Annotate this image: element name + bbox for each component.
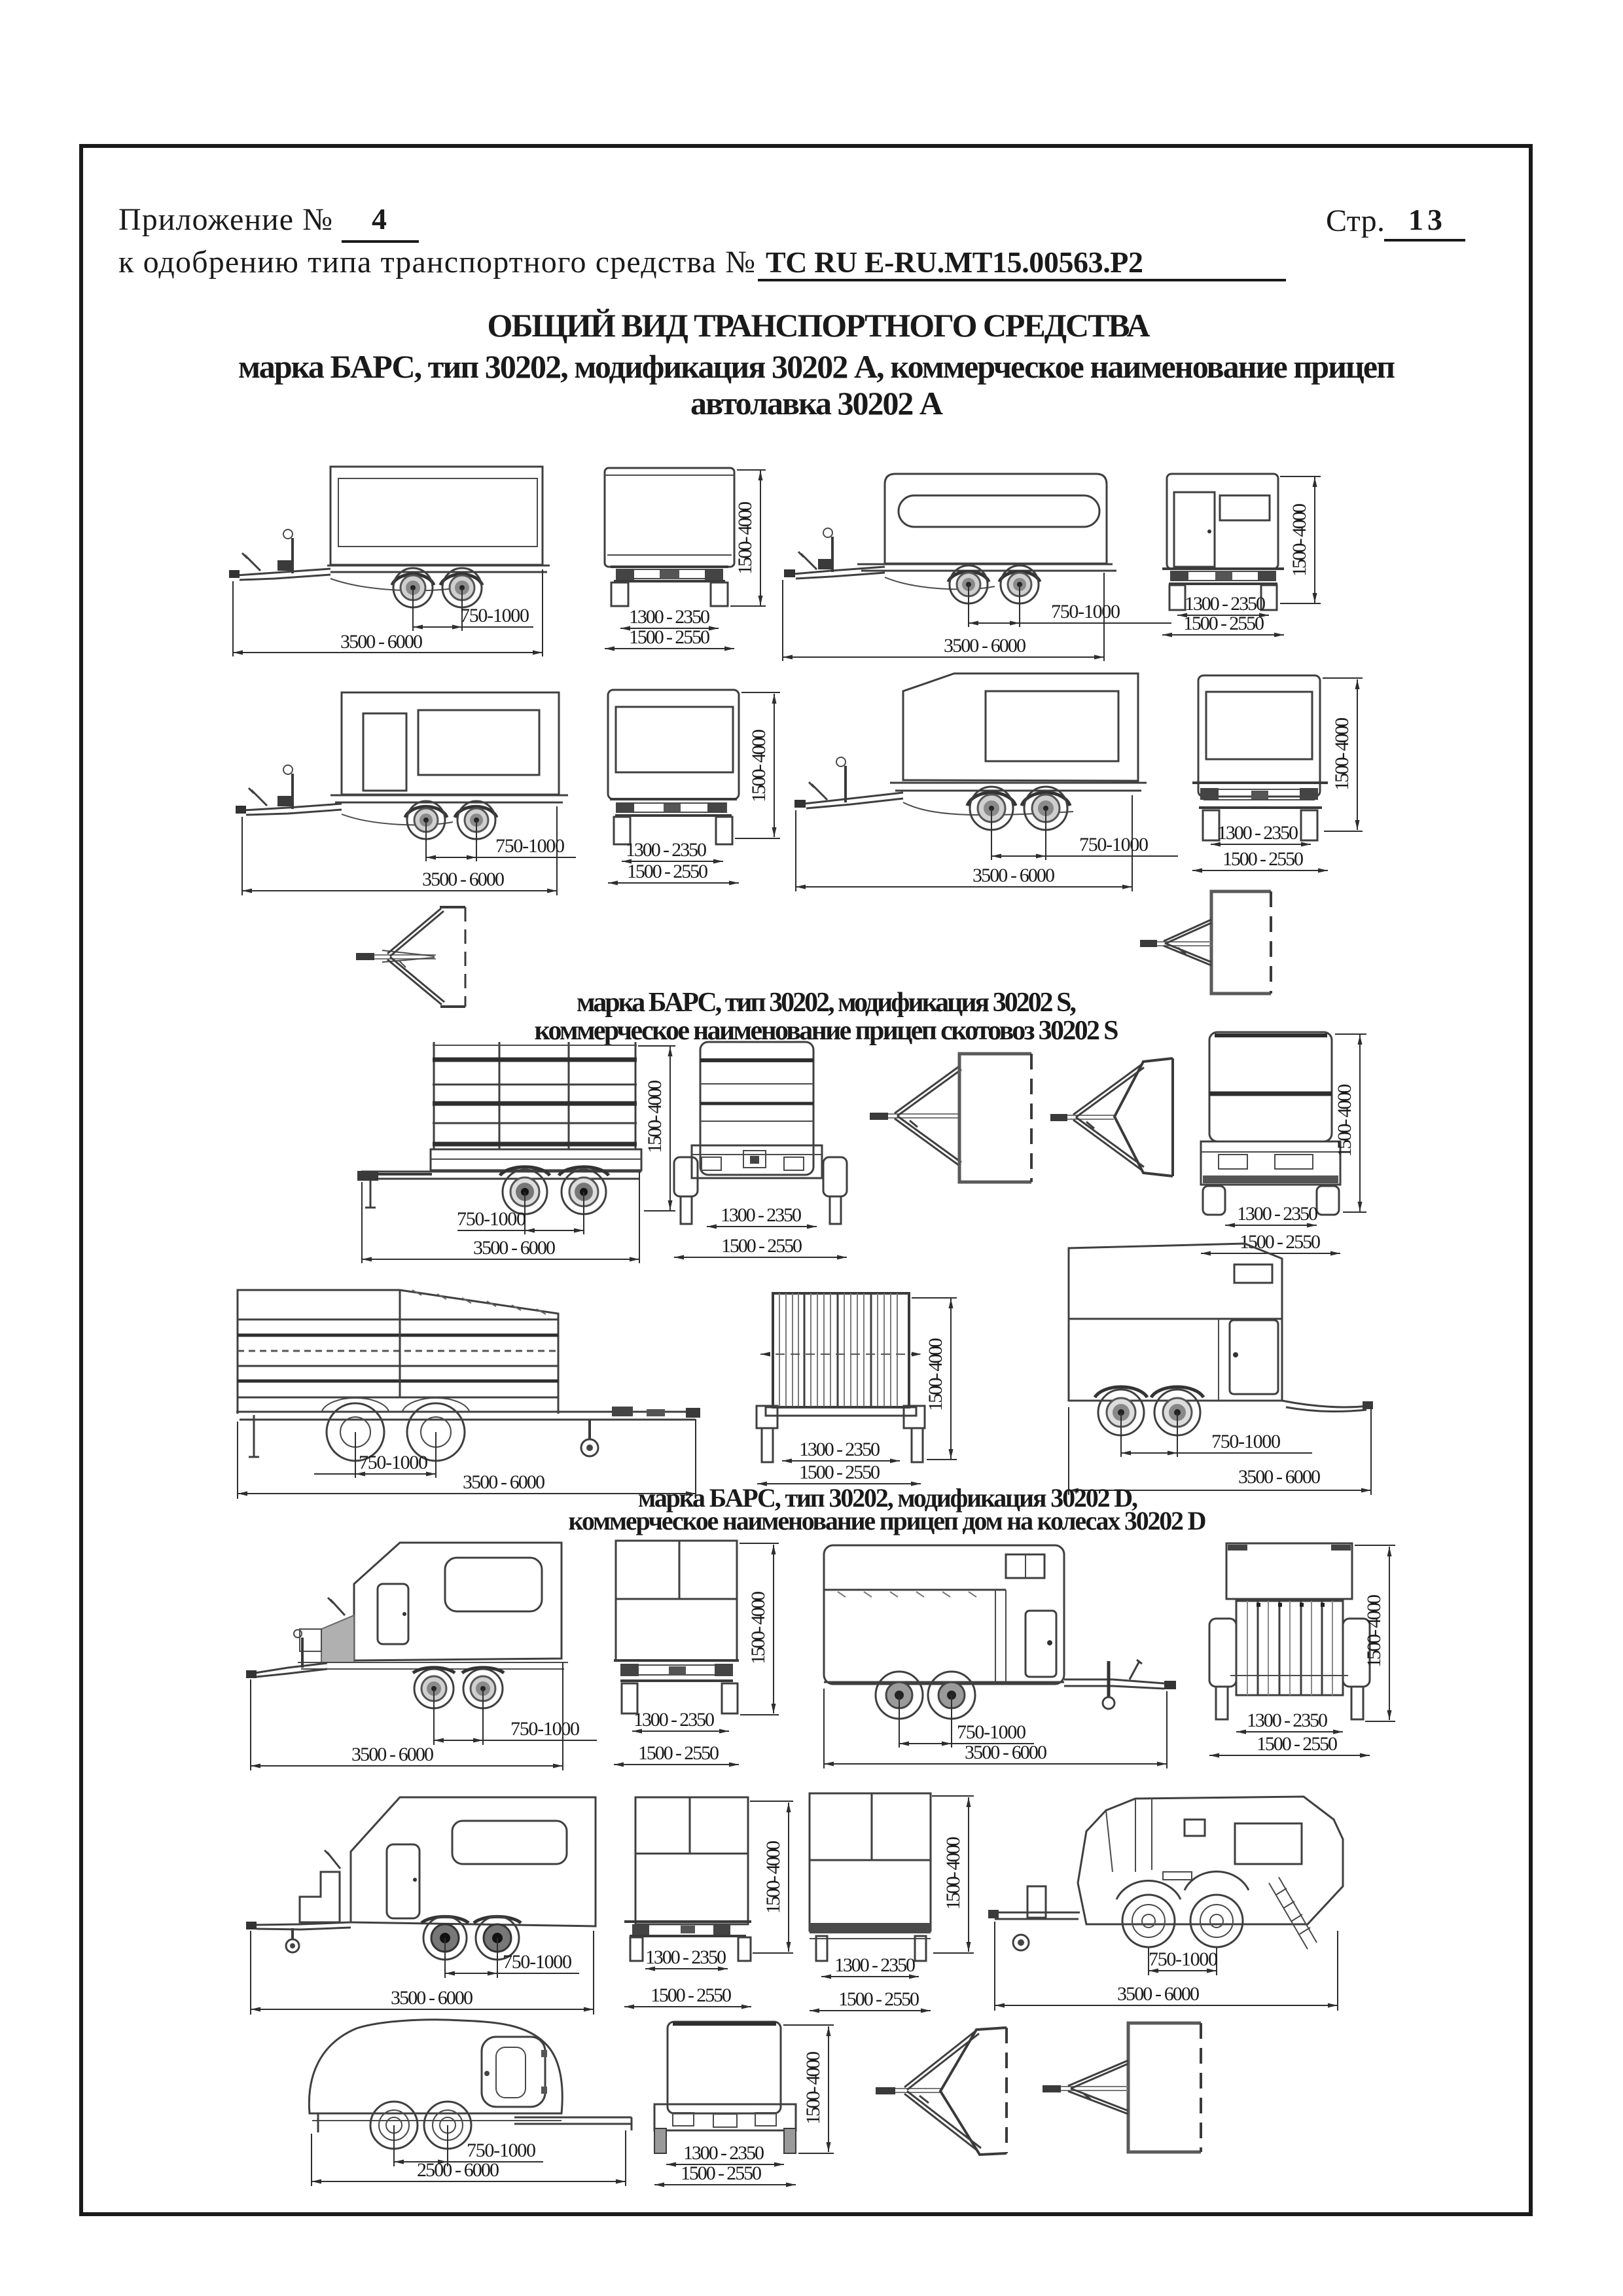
svg-text:750-1000: 750-1000 [1079,834,1149,855]
svg-text:1500 - 2550: 1500 - 2550 [721,1235,802,1257]
svg-text:1500 - 2550: 1500 - 2550 [627,861,708,882]
svg-text:1500 - 2550: 1500 - 2550 [1183,613,1264,634]
svg-text:1300 - 2350: 1300 - 2350 [633,1709,715,1731]
svg-text:3500 - 6000: 3500 - 6000 [351,1744,434,1765]
svg-text:3500 - 6000: 3500 - 6000 [1117,1983,1200,2005]
svg-text:1300 - 2350: 1300 - 2350 [1185,593,1266,615]
svg-text:750-1000: 750-1000 [1051,601,1120,622]
svg-text:1500 - 2550: 1500 - 2550 [1257,1733,1338,1755]
svg-text:3500 - 6000: 3500 - 6000 [944,635,1026,656]
svg-text:1500- 4000: 1500- 4000 [925,1338,946,1411]
svg-text:1300 - 2350: 1300 - 2350 [1237,1203,1318,1225]
svg-text:1500- 4000: 1500- 4000 [802,2051,824,2125]
svg-text:1500- 4000: 1500- 4000 [734,501,756,575]
svg-text:1500- 4000: 1500- 4000 [1289,503,1310,577]
svg-text:марка БАРС, тип 30202, модифик: марка БАРС, тип 30202, модификация 30202… [577,988,1077,1018]
svg-text:1300 - 2350: 1300 - 2350 [626,839,707,861]
svg-text:1500 - 2550: 1500 - 2550 [651,1984,732,2006]
svg-text:750-1000: 750-1000 [460,605,529,626]
svg-text:1500 - 2550: 1500 - 2550 [799,1462,880,1483]
svg-text:1500 - 2550: 1500 - 2550 [838,1988,919,2010]
svg-text:Приложение №: Приложение № [118,202,332,237]
svg-text:3500 - 6000: 3500 - 6000 [1238,1466,1321,1488]
svg-text:1500- 4000: 1500- 4000 [762,1840,784,1914]
svg-text:4: 4 [372,202,387,236]
svg-text:1300 - 2350: 1300 - 2350 [1247,1710,1328,1731]
svg-text:коммерческое наименование приц: коммерческое наименование прицеп дом на … [569,1506,1207,1535]
svg-text:3500 - 6000: 3500 - 6000 [473,1237,556,1259]
svg-text:1500- 4000: 1500- 4000 [1334,1084,1355,1157]
svg-text:750-1000: 750-1000 [467,2140,536,2161]
svg-text:1300 - 2350: 1300 - 2350 [1217,822,1298,844]
svg-text:1500- 4000: 1500- 4000 [1363,1594,1385,1668]
svg-text:1300 - 2350: 1300 - 2350 [645,1946,726,1968]
svg-text:750-1000: 750-1000 [359,1452,428,1473]
svg-text:к одобрению типа транспортного: к одобрению типа транспортного средства … [118,245,755,279]
svg-text:1300 - 2350: 1300 - 2350 [683,2142,764,2164]
svg-text:марка БАРС, тип 30202, модифик: марка БАРС, тип 30202, модификация 30202… [238,348,1395,385]
svg-text:3500 - 6000: 3500 - 6000 [965,1742,1047,1763]
svg-text:750-1000: 750-1000 [503,1951,572,1973]
svg-text:1500 - 2550: 1500 - 2550 [681,2162,762,2184]
svg-text:2500 - 6000: 2500 - 6000 [417,2159,499,2181]
svg-text:1500 - 2550: 1500 - 2550 [638,1742,719,1764]
svg-text:1300 - 2350: 1300 - 2350 [721,1204,802,1226]
svg-text:Стр.: Стр. [1326,204,1385,238]
svg-text:1500- 4000: 1500- 4000 [942,1837,964,1910]
svg-text:3500 - 6000: 3500 - 6000 [391,1987,473,2009]
svg-text:3500 - 6000: 3500 - 6000 [340,631,423,653]
svg-text:1500- 4000: 1500- 4000 [747,1591,769,1664]
svg-text:3500 - 6000: 3500 - 6000 [972,865,1055,886]
svg-text:1500 - 2550: 1500 - 2550 [1222,848,1304,870]
svg-text:1500- 4000: 1500- 4000 [748,729,770,802]
svg-text:750-1000: 750-1000 [1211,1431,1281,1452]
svg-text:750-1000: 750-1000 [457,1208,526,1230]
svg-text:1300 - 2350: 1300 - 2350 [799,1439,880,1460]
svg-text:750-1000: 750-1000 [495,835,565,857]
svg-text:1300 - 2350: 1300 - 2350 [629,606,710,628]
svg-text:750-1000: 750-1000 [1149,1948,1218,1970]
svg-text:1500 - 2550: 1500 - 2550 [629,626,710,648]
svg-text:1500- 4000: 1500- 4000 [644,1080,666,1153]
svg-text:1300 - 2350: 1300 - 2350 [834,1954,916,1976]
svg-text:750-1000: 750-1000 [957,1721,1026,1743]
svg-text:1500- 4000: 1500- 4000 [1331,717,1353,791]
svg-text:1500 - 2550: 1500 - 2550 [1240,1231,1321,1253]
svg-text:750-1000: 750-1000 [510,1718,580,1740]
svg-text:ТС RU E-RU.MT15.00563.P2: ТС RU E-RU.MT15.00563.P2 [766,245,1143,279]
svg-text:3500 - 6000: 3500 - 6000 [463,1471,545,1493]
svg-text:автолавка 30202 А: автолавка 30202 А [690,385,943,422]
svg-text:коммерческое наименование приц: коммерческое наименование прицеп скотово… [535,1016,1119,1046]
svg-text:3500 - 6000: 3500 - 6000 [422,869,505,890]
svg-text:ОБЩИЙ ВИД ТРАНСПОРТНОГО СРЕДСТ: ОБЩИЙ ВИД ТРАНСПОРТНОГО СРЕДСТВА [488,307,1150,344]
